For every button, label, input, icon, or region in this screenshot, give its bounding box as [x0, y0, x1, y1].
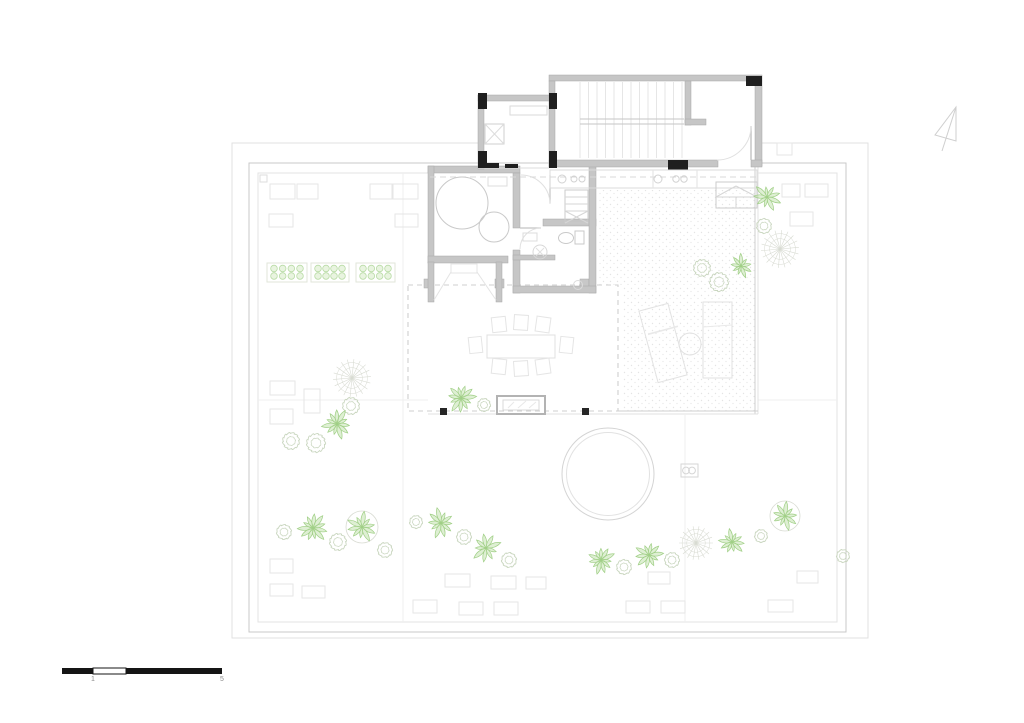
bush-outline — [409, 516, 422, 529]
pergola-post — [440, 408, 447, 415]
bush-inner — [757, 532, 764, 539]
column — [668, 160, 688, 170]
wall — [685, 81, 691, 125]
planter-plant — [271, 273, 278, 280]
terrace-table — [805, 184, 828, 197]
terrace-table — [494, 602, 518, 615]
terrace-table — [459, 602, 483, 615]
bush-plant — [276, 524, 291, 539]
column — [478, 151, 487, 168]
bush-outline — [377, 543, 392, 558]
tree-spoke — [338, 378, 352, 391]
palm-plant — [474, 534, 501, 562]
wall — [685, 119, 706, 125]
bush-inner — [839, 552, 846, 559]
bush-outline — [276, 524, 291, 539]
planter-plant — [331, 273, 338, 280]
planter-plant — [385, 265, 392, 272]
planter-plant — [288, 273, 295, 280]
terrace-table — [270, 409, 293, 424]
terrace-table — [413, 600, 437, 613]
planter-plant — [360, 265, 367, 272]
planter-plant — [339, 265, 346, 272]
terrace-table — [297, 184, 318, 199]
bush-outline — [306, 433, 325, 452]
planter-plant — [315, 265, 322, 272]
planter-plant — [279, 273, 286, 280]
bush-inner — [620, 563, 628, 571]
door-track — [505, 164, 518, 168]
palm-plant — [429, 508, 452, 538]
north-arrow — [935, 107, 956, 141]
planter-plant — [271, 265, 278, 272]
north-arrow — [942, 107, 956, 151]
bush-outline — [757, 218, 772, 233]
palm-plant — [322, 410, 350, 439]
tree-spoke — [780, 236, 793, 250]
floor-plan-svg — [0, 0, 1024, 723]
planter-plant — [376, 265, 383, 272]
bush-inner — [333, 537, 342, 546]
bush-plant — [377, 543, 392, 558]
column — [746, 76, 762, 86]
scale-bar-segment — [126, 668, 222, 674]
bush-outline — [329, 533, 346, 550]
terrace-table — [445, 574, 470, 587]
wall — [513, 173, 520, 228]
skylight-dome — [562, 428, 654, 520]
bush-inner — [381, 546, 389, 554]
wall — [589, 166, 596, 293]
corner-drain — [260, 175, 267, 182]
terrace-table — [782, 184, 800, 197]
wall — [755, 81, 762, 166]
column — [478, 93, 487, 109]
bush-inner — [311, 438, 321, 448]
bush-outline — [836, 549, 849, 562]
bush-outline — [617, 559, 632, 574]
planter-plant — [368, 265, 375, 272]
palmcircle-plant — [346, 511, 378, 543]
tree-center — [779, 248, 781, 250]
radial-plant — [333, 359, 371, 397]
column — [549, 93, 557, 109]
bush-inner — [460, 533, 468, 541]
terrace-table — [393, 184, 418, 199]
terrace-table — [661, 601, 685, 613]
scale-label-5: 5 — [220, 676, 224, 683]
bush-outline — [501, 552, 516, 567]
tree-center — [695, 542, 697, 544]
terrace-table — [302, 586, 325, 598]
wall — [549, 75, 762, 81]
planter-plant — [279, 265, 286, 272]
radial-plant — [679, 526, 713, 559]
tree-spoke — [352, 365, 366, 378]
planter-plant — [368, 273, 375, 280]
bush-plant — [282, 432, 299, 449]
bush-plant — [329, 533, 346, 550]
terrace-table — [526, 577, 546, 589]
bush-plant — [836, 549, 849, 562]
terrace-table — [797, 571, 818, 583]
palm-plant — [297, 514, 326, 540]
planter-plant — [297, 273, 304, 280]
tree-center — [351, 377, 353, 379]
wall — [496, 262, 502, 302]
terrace-table — [648, 572, 670, 584]
palmcircle-plant — [770, 501, 800, 531]
bush-plant — [306, 433, 325, 452]
palm-plant — [636, 544, 664, 568]
stair-bulkhead-floor — [478, 75, 762, 170]
bush-inner — [280, 528, 288, 536]
skylight-dome — [567, 433, 650, 516]
bush-plant — [664, 552, 679, 567]
deck-paving — [622, 287, 755, 411]
terrace-table — [790, 212, 813, 226]
wall — [549, 160, 718, 167]
planter-plant — [360, 273, 367, 280]
bush-inner — [412, 518, 419, 525]
bush-outline — [282, 432, 299, 449]
bush-plant — [409, 516, 422, 529]
planter-plant — [331, 265, 338, 272]
radial-plant — [761, 230, 799, 268]
tree-spoke — [696, 543, 709, 554]
terrace-table — [626, 601, 650, 613]
rooftop-unit — [777, 143, 792, 155]
terrace-table — [370, 184, 392, 199]
scale-label-1: 1 — [91, 676, 95, 683]
planter-plant — [339, 273, 346, 280]
scale-bar-segment — [62, 668, 93, 674]
bush-inner — [505, 556, 513, 564]
planter-plant — [288, 265, 295, 272]
bush-outline — [754, 530, 767, 543]
planter-plant — [323, 265, 330, 272]
column — [549, 151, 557, 168]
bush-plant — [501, 552, 516, 567]
bush-inner — [668, 556, 676, 564]
scale-bar-segment — [93, 668, 126, 674]
bush-plant — [456, 530, 471, 545]
palm-plant — [718, 529, 744, 552]
bush-outline — [664, 552, 679, 567]
planter-plant — [385, 273, 392, 280]
terrace-table — [270, 559, 293, 573]
planter-plant — [297, 265, 304, 272]
tree-spoke — [767, 249, 780, 263]
wall — [513, 286, 596, 293]
wall — [751, 160, 762, 167]
planter-plant — [315, 273, 322, 280]
bush-plant — [757, 218, 772, 233]
terrace-table — [768, 600, 793, 612]
terrace-table — [269, 214, 293, 227]
bush-outline — [456, 530, 471, 545]
pergola-post — [582, 408, 589, 415]
door-track — [487, 163, 499, 168]
planter-plant — [376, 273, 383, 280]
drawing-sheet: 1 5 — [0, 0, 1024, 723]
terrace-table — [395, 214, 418, 227]
wall — [428, 262, 434, 302]
terrace-table — [270, 184, 295, 199]
terrace-table — [270, 584, 293, 596]
bush-plant — [617, 559, 632, 574]
terrace-table — [304, 389, 320, 413]
wall — [428, 166, 434, 263]
palm-plant — [589, 548, 614, 574]
terrace-table — [491, 576, 516, 589]
bush-inner — [286, 436, 295, 445]
bush-inner — [347, 402, 356, 411]
bush-inner — [760, 222, 768, 230]
bush-plant — [754, 530, 767, 543]
planter-plant — [323, 273, 330, 280]
terrace-table — [270, 381, 295, 395]
deck-paving — [598, 190, 755, 285]
wall — [478, 95, 549, 101]
